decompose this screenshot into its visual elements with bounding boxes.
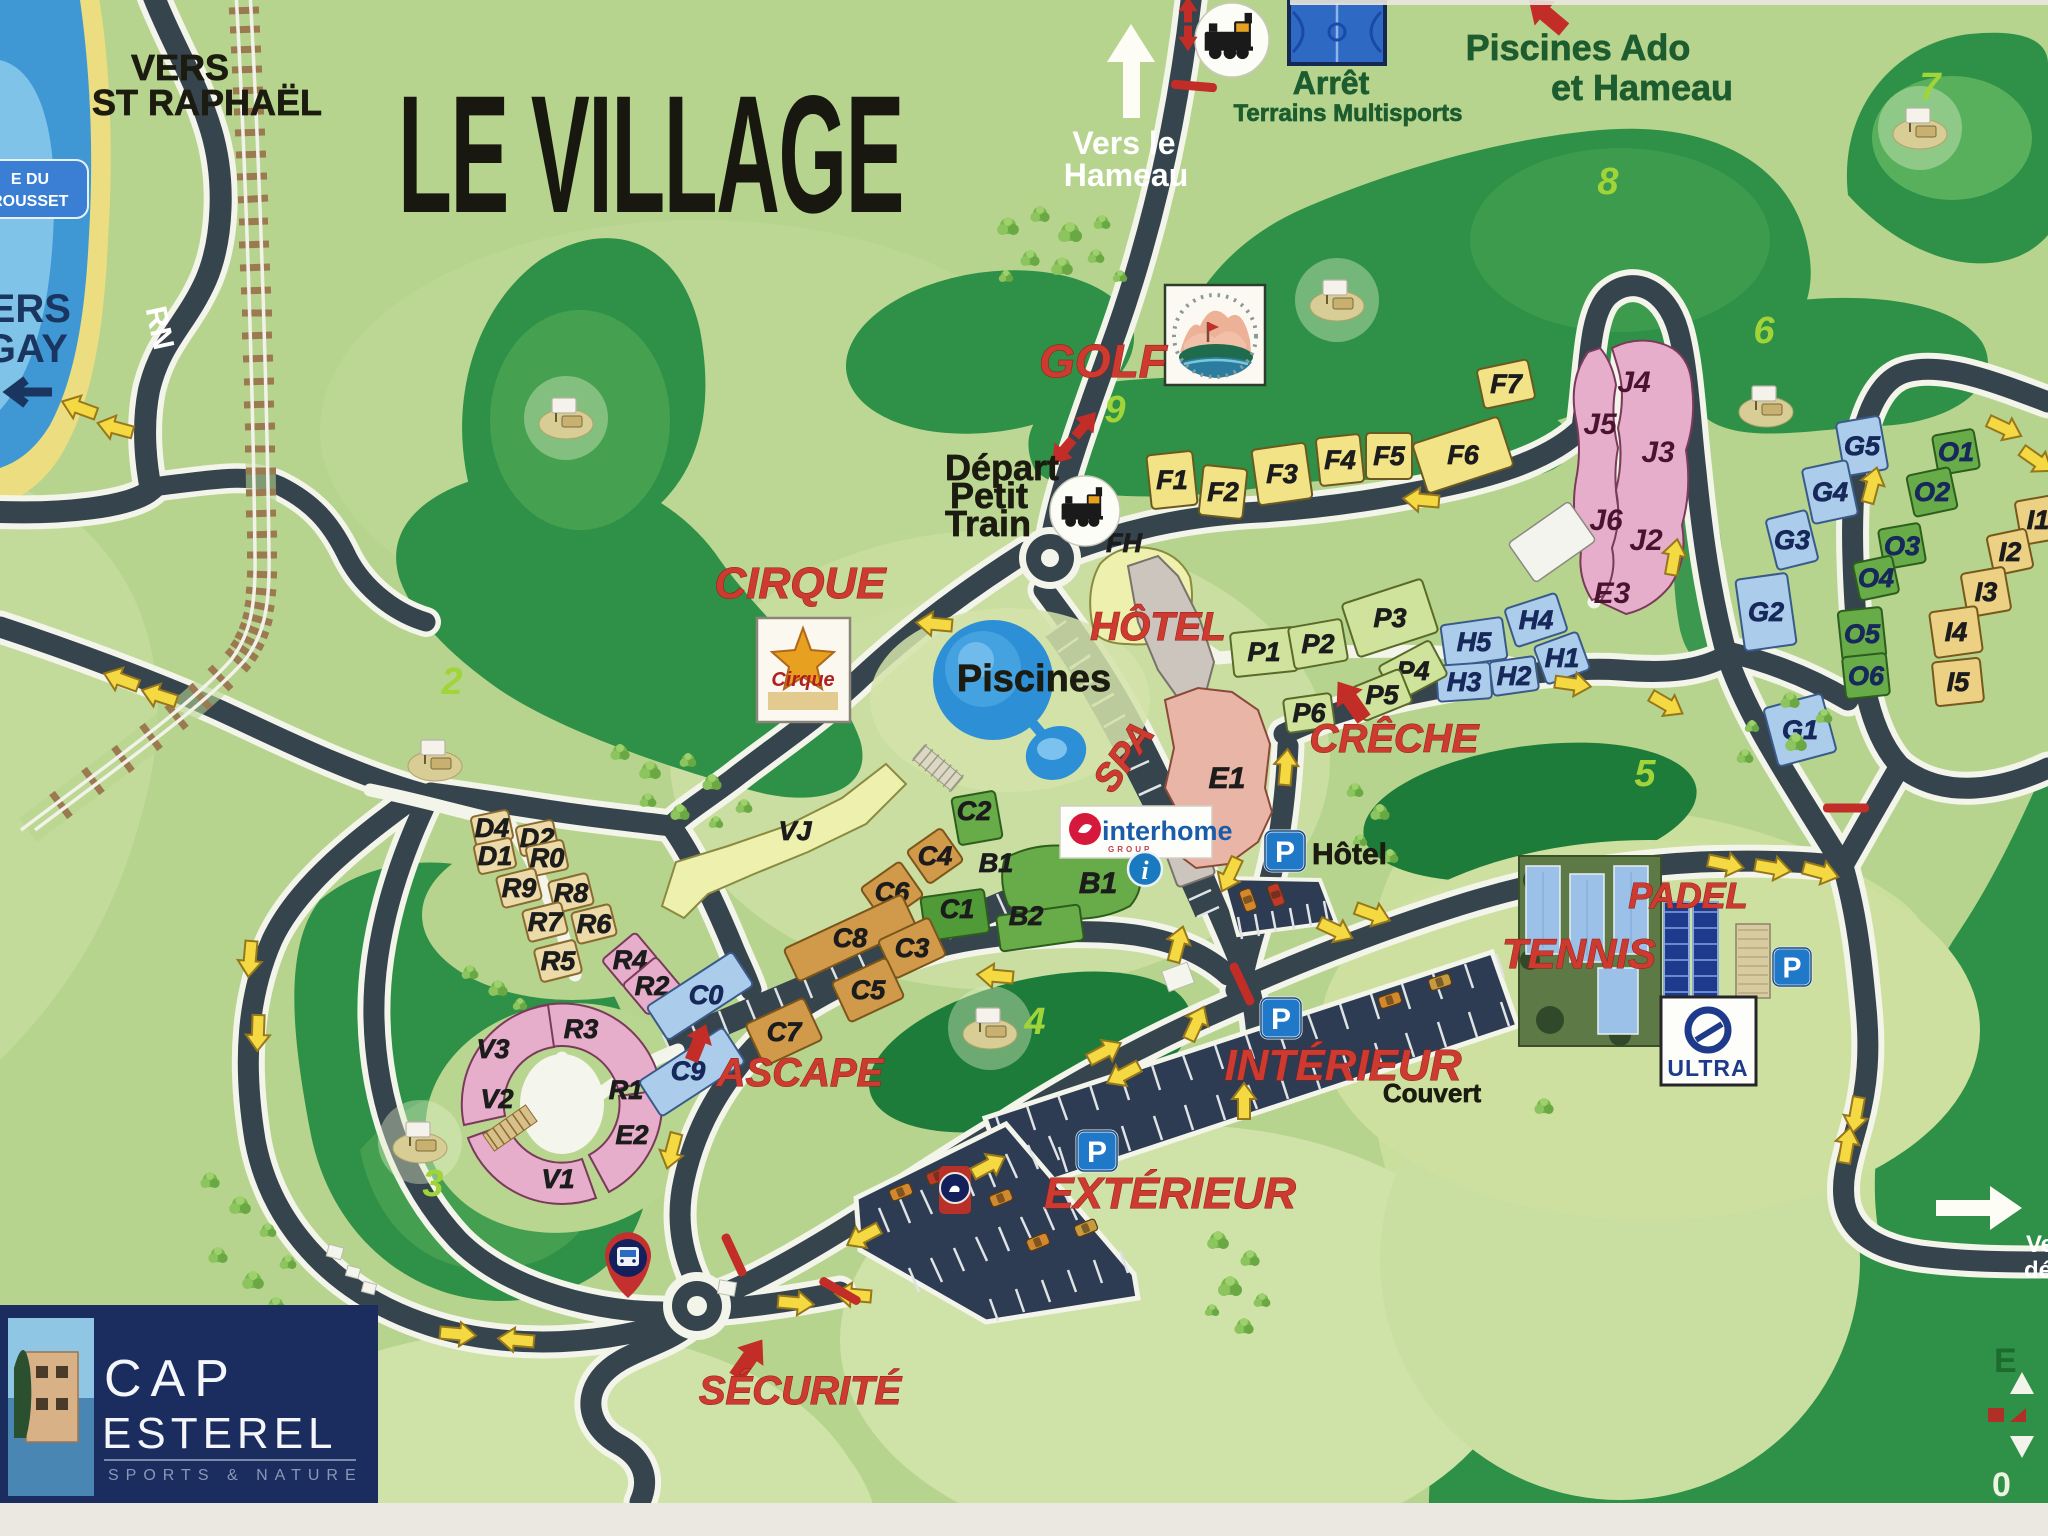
svg-text:P3: P3 xyxy=(1373,603,1406,633)
svg-text:H2: H2 xyxy=(1497,661,1532,691)
svg-text:H4: H4 xyxy=(1519,605,1554,635)
svg-text:F1: F1 xyxy=(1156,465,1188,495)
svg-text:Ve: Ve xyxy=(2026,1231,2048,1258)
svg-text:C2: C2 xyxy=(957,796,992,826)
svg-text:7: 7 xyxy=(1919,66,1942,108)
svg-text:Cirque: Cirque xyxy=(771,669,834,691)
svg-text:C9: C9 xyxy=(671,1056,706,1086)
svg-text:ESTEREL: ESTEREL xyxy=(102,1409,338,1458)
svg-text:G4: G4 xyxy=(1812,477,1848,507)
svg-text:6: 6 xyxy=(1753,310,1775,352)
svg-text:SÉCURITÉ: SÉCURITÉ xyxy=(699,1368,903,1413)
svg-text:O1: O1 xyxy=(1938,437,1974,467)
svg-text:F7: F7 xyxy=(1490,369,1523,399)
svg-text:GOLF: GOLF xyxy=(1039,335,1169,387)
svg-text:0: 0 xyxy=(1992,1466,2011,1504)
svg-text:R5: R5 xyxy=(541,946,576,976)
svg-text:R1: R1 xyxy=(609,1075,644,1105)
svg-text:Hôtel: Hôtel xyxy=(1312,838,1387,871)
svg-text:D1: D1 xyxy=(478,841,513,871)
svg-text:B1: B1 xyxy=(1079,867,1117,900)
svg-text:VJ: VJ xyxy=(778,816,812,846)
svg-text:G2: G2 xyxy=(1748,597,1784,627)
svg-text:R0: R0 xyxy=(530,843,565,873)
svg-text:EXTÉRIEUR: EXTÉRIEUR xyxy=(1044,1168,1296,1218)
svg-text:Train: Train xyxy=(945,503,1031,544)
svg-text:4: 4 xyxy=(1023,1001,1045,1043)
svg-text:O6: O6 xyxy=(1848,661,1885,691)
svg-text:VERS: VERS xyxy=(0,287,71,331)
svg-text:O2: O2 xyxy=(1914,477,1950,507)
svg-text:I5: I5 xyxy=(1947,667,1971,697)
svg-text:Couvert: Couvert xyxy=(1383,1078,1482,1108)
svg-text:G5: G5 xyxy=(1844,431,1881,461)
svg-text:PADEL: PADEL xyxy=(1628,875,1747,916)
svg-text:E: E xyxy=(1994,1342,2017,1380)
svg-text:et Hameau: et Hameau xyxy=(1551,67,1733,108)
svg-text:R9: R9 xyxy=(502,873,537,903)
svg-text:Piscines: Piscines xyxy=(957,658,1111,700)
svg-text:B1: B1 xyxy=(979,848,1014,878)
svg-text:C4: C4 xyxy=(918,841,953,871)
svg-text:SPORTS & NATURE: SPORTS & NATURE xyxy=(108,1467,363,1484)
svg-text:AGAY: AGAY xyxy=(0,327,68,371)
svg-text:ASCAPE: ASCAPE xyxy=(716,1051,885,1095)
svg-text:I4: I4 xyxy=(1945,617,1968,647)
svg-text:B2: B2 xyxy=(1009,901,1044,931)
svg-text:C0: C0 xyxy=(689,980,724,1010)
svg-text:dé: dé xyxy=(2024,1257,2048,1284)
svg-text:8: 8 xyxy=(1597,161,1619,203)
svg-text:ST RAPHAËL: ST RAPHAËL xyxy=(92,82,322,123)
svg-text:Arrêt: Arrêt xyxy=(1293,65,1370,101)
svg-text:Terrains Multisports: Terrains Multisports xyxy=(1234,100,1463,127)
svg-text:J6: J6 xyxy=(1589,504,1623,537)
svg-text:i: i xyxy=(1141,856,1149,885)
svg-text:E DU: E DU xyxy=(11,171,49,188)
svg-text:J5: J5 xyxy=(1583,408,1618,441)
svg-text:ULTRA: ULTRA xyxy=(1667,1055,1748,1081)
svg-text:I1: I1 xyxy=(2027,505,2048,535)
svg-text:F3: F3 xyxy=(1266,459,1298,489)
svg-text:V3: V3 xyxy=(476,1034,509,1064)
svg-text:V1: V1 xyxy=(541,1164,574,1194)
svg-text:2: 2 xyxy=(440,661,462,703)
svg-text:H3: H3 xyxy=(1447,667,1482,697)
svg-text:V2: V2 xyxy=(480,1084,513,1114)
svg-text:I3: I3 xyxy=(1975,577,1998,607)
svg-text:TENNIS: TENNIS xyxy=(1502,930,1656,977)
svg-text:E3: E3 xyxy=(1594,577,1631,610)
svg-text:Piscines Ado: Piscines Ado xyxy=(1466,27,1691,68)
svg-text:P1: P1 xyxy=(1247,637,1280,667)
svg-text:BROUSSET: BROUSSET xyxy=(0,193,69,210)
svg-text:I2: I2 xyxy=(1999,537,2022,567)
svg-text:9: 9 xyxy=(1104,389,1125,431)
svg-text:CIRQUE: CIRQUE xyxy=(714,559,887,608)
svg-text:J4: J4 xyxy=(1617,366,1651,399)
svg-text:R3: R3 xyxy=(564,1014,599,1044)
svg-text:C1: C1 xyxy=(940,894,975,924)
svg-text:C5: C5 xyxy=(851,975,886,1005)
svg-text:F4: F4 xyxy=(1324,445,1356,475)
svg-text:F2: F2 xyxy=(1207,477,1239,507)
svg-text:O5: O5 xyxy=(1844,619,1881,649)
svg-text:G3: G3 xyxy=(1774,525,1810,555)
svg-text:CAP: CAP xyxy=(104,1350,238,1408)
svg-text:F5: F5 xyxy=(1373,441,1405,471)
svg-text:HÔTEL: HÔTEL xyxy=(1090,603,1226,649)
svg-text:Hameau: Hameau xyxy=(1064,157,1189,193)
svg-text:P2: P2 xyxy=(1301,629,1334,659)
svg-text:H1: H1 xyxy=(1545,643,1580,673)
svg-text:3: 3 xyxy=(422,1163,443,1205)
svg-text:CRÊCHE: CRÊCHE xyxy=(1310,715,1480,761)
svg-text:J2: J2 xyxy=(1629,524,1663,557)
svg-text:C7: C7 xyxy=(767,1017,803,1047)
svg-text:Vers le: Vers le xyxy=(1072,125,1175,161)
svg-text:LE VILLAGE: LE VILLAGE xyxy=(398,61,903,248)
svg-text:P5: P5 xyxy=(1365,680,1399,710)
svg-text:F6: F6 xyxy=(1447,440,1479,470)
svg-text:C3: C3 xyxy=(895,933,930,963)
svg-text:J3: J3 xyxy=(1641,436,1675,469)
svg-text:E2: E2 xyxy=(615,1120,648,1150)
svg-text:R7: R7 xyxy=(528,907,564,937)
svg-text:R6: R6 xyxy=(577,909,612,939)
svg-text:5: 5 xyxy=(1634,753,1656,795)
svg-text:interhome: interhome xyxy=(1102,816,1233,846)
svg-text:O4: O4 xyxy=(1858,563,1894,593)
svg-text:C8: C8 xyxy=(833,923,868,953)
svg-text:H5: H5 xyxy=(1457,627,1492,657)
svg-text:E1: E1 xyxy=(1209,762,1246,795)
